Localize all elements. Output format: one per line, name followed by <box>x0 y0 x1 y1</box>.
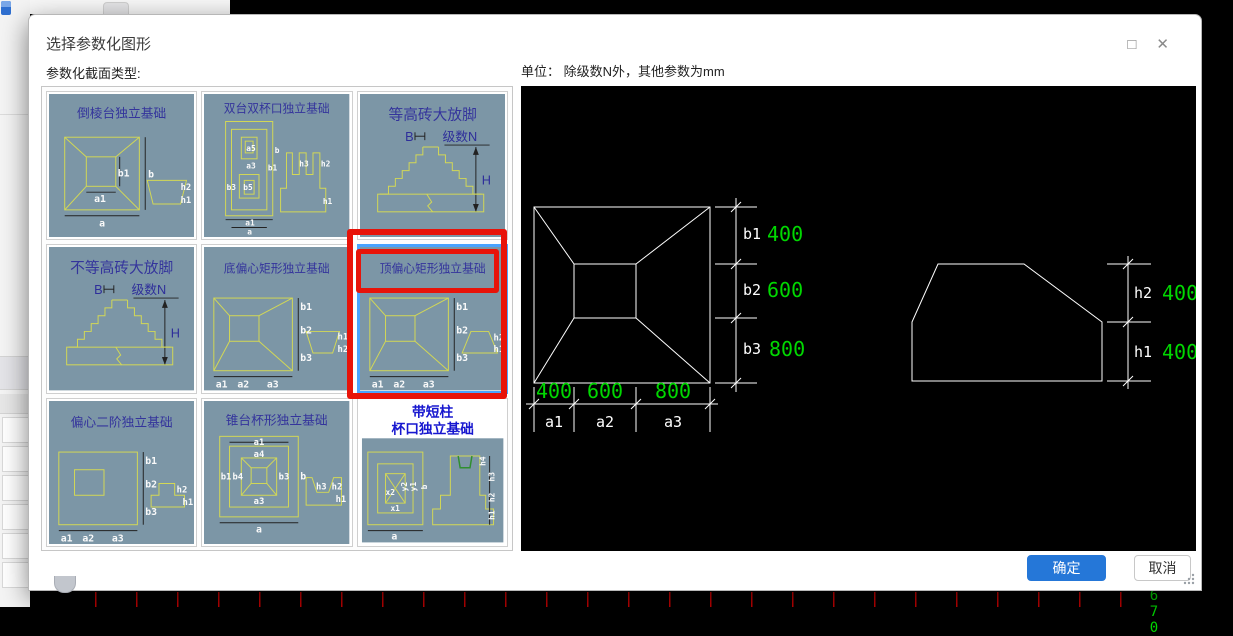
thumb-title: 顶偏心矩形独立基础 <box>379 262 485 276</box>
dim-label: h3 <box>316 482 327 492</box>
dim-label: b2 <box>456 326 468 337</box>
table-header-row <box>0 356 30 390</box>
thumb-title: 偏心二阶独立基础 <box>71 414 173 429</box>
dim-label: a3 <box>423 380 435 391</box>
dim-label: 级数N <box>131 282 166 297</box>
section-type-grid: 倒棱台独立基础 b1 b a1 a h2 h1 <box>41 86 513 551</box>
section-type-label: 参数化截面类型: <box>46 63 141 82</box>
dim-value: 400 <box>1162 281 1196 305</box>
dim-label: a1 <box>61 533 73 544</box>
dim-value: 400 <box>767 222 803 246</box>
dim-label: a1 <box>94 194 106 205</box>
dim-label: B <box>94 282 103 297</box>
background-top-strip <box>30 0 230 14</box>
dim-label: h2 <box>321 160 331 169</box>
thumb-title: 底偏心矩形独立基础 <box>224 262 330 276</box>
ok-button[interactable]: 确定 <box>1027 555 1106 581</box>
dim-label: a2 <box>393 380 405 391</box>
dim-label: h4 <box>478 456 487 466</box>
dim-label: b4 <box>233 472 244 482</box>
dim-label: h1 <box>183 498 194 508</box>
dim-label: h3 <box>487 472 496 482</box>
dim-label: y2 <box>400 481 409 491</box>
dim-label: a <box>256 524 262 535</box>
dim-label: h2 <box>177 485 188 495</box>
app-logo-icon <box>1 1 11 15</box>
resize-grip[interactable] <box>1183 573 1195 585</box>
thumb-short-column-cup-foundation[interactable]: 带短柱 杯口独立基础 x2 y2 x1 y1 <box>357 398 508 547</box>
dialog-title: 选择参数化图形 <box>46 33 151 54</box>
thumb-unequal-height-brick-footing[interactable]: 不等高砖大放脚 B 级数N H <box>46 244 197 393</box>
dim-label: h1 <box>1134 343 1152 361</box>
dim-label: b3 <box>145 507 157 518</box>
dim-value: 800 <box>655 379 691 403</box>
dim-label: a1 <box>254 438 265 448</box>
table-subheader-row <box>0 394 30 414</box>
dim-label: a2 <box>82 533 94 544</box>
divider <box>0 114 30 115</box>
dim-label: b3 <box>456 353 468 364</box>
dim-label: b <box>301 471 307 482</box>
thumb-title: 锥台杯形独立基础 <box>226 412 328 427</box>
cad-grid-lines <box>95 592 1135 607</box>
dim-label: b <box>419 484 428 489</box>
dim-label: h1 <box>338 333 349 343</box>
dim-value: 400 <box>536 379 572 403</box>
maximize-icon[interactable]: □ <box>1127 37 1136 52</box>
preview-canvas: b1 400 b2 600 b3 800 400 600 800 a1 a2 a… <box>521 86 1196 551</box>
thumb-title-line1: 带短柱 <box>412 403 453 419</box>
thumb-double-cup-foundation[interactable]: 双台双杯口独立基础 a5 a3 b1 b b3 b5 a1 <box>201 91 352 240</box>
dim-value: 600 <box>767 278 803 302</box>
dim-label: a2 <box>596 413 614 431</box>
elevation-view <box>912 256 1151 389</box>
dim-label: h1 <box>493 345 504 355</box>
dim-label: a3 <box>254 497 265 507</box>
background-app-panel <box>0 0 30 607</box>
dim-label: B <box>405 129 414 144</box>
dim-label: a1 <box>545 413 563 431</box>
dim-label: a1 <box>216 380 228 391</box>
dim-label: a <box>248 227 253 236</box>
select-parametric-graphic-dialog: 选择参数化图形 □ ✕ 参数化截面类型: 单位： 除级数N外，其他参数为mm 倒… <box>28 14 1202 591</box>
dim-label: b3 <box>301 353 313 364</box>
dim-label: h1 <box>181 196 192 206</box>
close-icon[interactable]: ✕ <box>1156 37 1169 52</box>
dim-label: b3 <box>227 183 237 192</box>
dim-label: b1 <box>221 472 232 482</box>
dim-label: a4 <box>254 450 265 460</box>
dim-label: h2 <box>181 183 192 193</box>
dim-label: b2 <box>743 281 761 299</box>
dim-label: a3 <box>267 380 279 391</box>
dim-label: x2 <box>385 488 395 497</box>
background-tab <box>103 2 129 14</box>
dim-label: b <box>148 169 154 180</box>
dim-label: a1 <box>371 380 383 391</box>
dim-label: a <box>391 531 397 542</box>
dim-label: a2 <box>238 380 250 391</box>
dim-label: h1 <box>323 197 333 206</box>
dim-label: 级数N <box>442 129 477 144</box>
dim-label: b1 <box>743 225 761 243</box>
dim-label: b1 <box>268 164 278 173</box>
dim-label: a1 <box>246 219 256 228</box>
dim-label: h2 <box>1134 284 1152 302</box>
thumb-eccentric-two-step-foundation[interactable]: 偏心二阶独立基础 b1 b2 b3 a1 a2 a3 h2 h1 <box>46 398 197 547</box>
thumb-equal-height-brick-footing[interactable]: 等高砖大放脚 B 级数N H <box>357 91 508 240</box>
dim-label: h2 <box>332 482 343 492</box>
dim-value: 400 <box>1162 340 1196 364</box>
thumb-bottom-eccentric-foundation[interactable]: 底偏心矩形独立基础 b1 b2 b3 a1 a2 a3 h1 h2 <box>201 244 352 393</box>
dim-label: b3 <box>743 340 761 358</box>
dim-label: H <box>171 326 180 341</box>
dim-label: h2 <box>338 345 349 355</box>
thumb-title: 双台双杯口独立基础 <box>224 102 330 116</box>
dim-label: h2 <box>487 492 496 502</box>
dim-label: b2 <box>145 479 157 490</box>
dim-label: a <box>99 219 105 230</box>
dim-label: b1 <box>456 302 468 313</box>
dim-label: a3 <box>664 413 682 431</box>
dim-label: h2 <box>493 334 504 344</box>
thumb-top-eccentric-foundation[interactable]: 顶偏心矩形独立基础 b1 b2 b3 a1 a2 a3 h2 h1 <box>357 244 508 393</box>
dim-label: b3 <box>279 472 290 482</box>
dim-label: a3 <box>247 162 257 171</box>
thumb-title: 不等高砖大放脚 <box>70 259 173 277</box>
thumb-title: 倒棱台独立基础 <box>77 106 166 121</box>
dim-label: a5 <box>247 144 257 153</box>
dim-label: b5 <box>244 183 254 192</box>
thumb-cone-cup-foundation[interactable]: 锥台杯形独立基础 a1 a4 b1 b4 b3 b a3 <box>201 398 352 547</box>
dim-label: b1 <box>145 456 157 467</box>
dim-value: 600 <box>587 379 623 403</box>
dim-label: h3 <box>300 160 310 169</box>
dim-label: b <box>275 146 280 155</box>
dim-value: 800 <box>769 337 805 361</box>
dim-label: h1 <box>487 510 496 520</box>
dim-label: b1 <box>118 168 130 179</box>
dim-label: y1 <box>409 481 418 491</box>
thumb-title-line2: 杯口独立基础 <box>391 420 474 436</box>
dim-label: a3 <box>112 533 124 544</box>
dim-label: x1 <box>390 504 400 513</box>
dim-label: H <box>481 172 490 187</box>
dim-label: b2 <box>301 326 313 337</box>
thumb-title: 等高砖大放脚 <box>388 106 476 124</box>
dim-label: b1 <box>301 302 313 313</box>
thumb-inverted-prism-foundation[interactable]: 倒棱台独立基础 b1 b a1 a h2 h1 <box>46 91 197 240</box>
unit-label: 单位： 除级数N外，其他参数为mm <box>521 61 725 80</box>
dim-label: h1 <box>336 495 347 505</box>
cad-axis-label: 670 <box>1146 588 1162 636</box>
